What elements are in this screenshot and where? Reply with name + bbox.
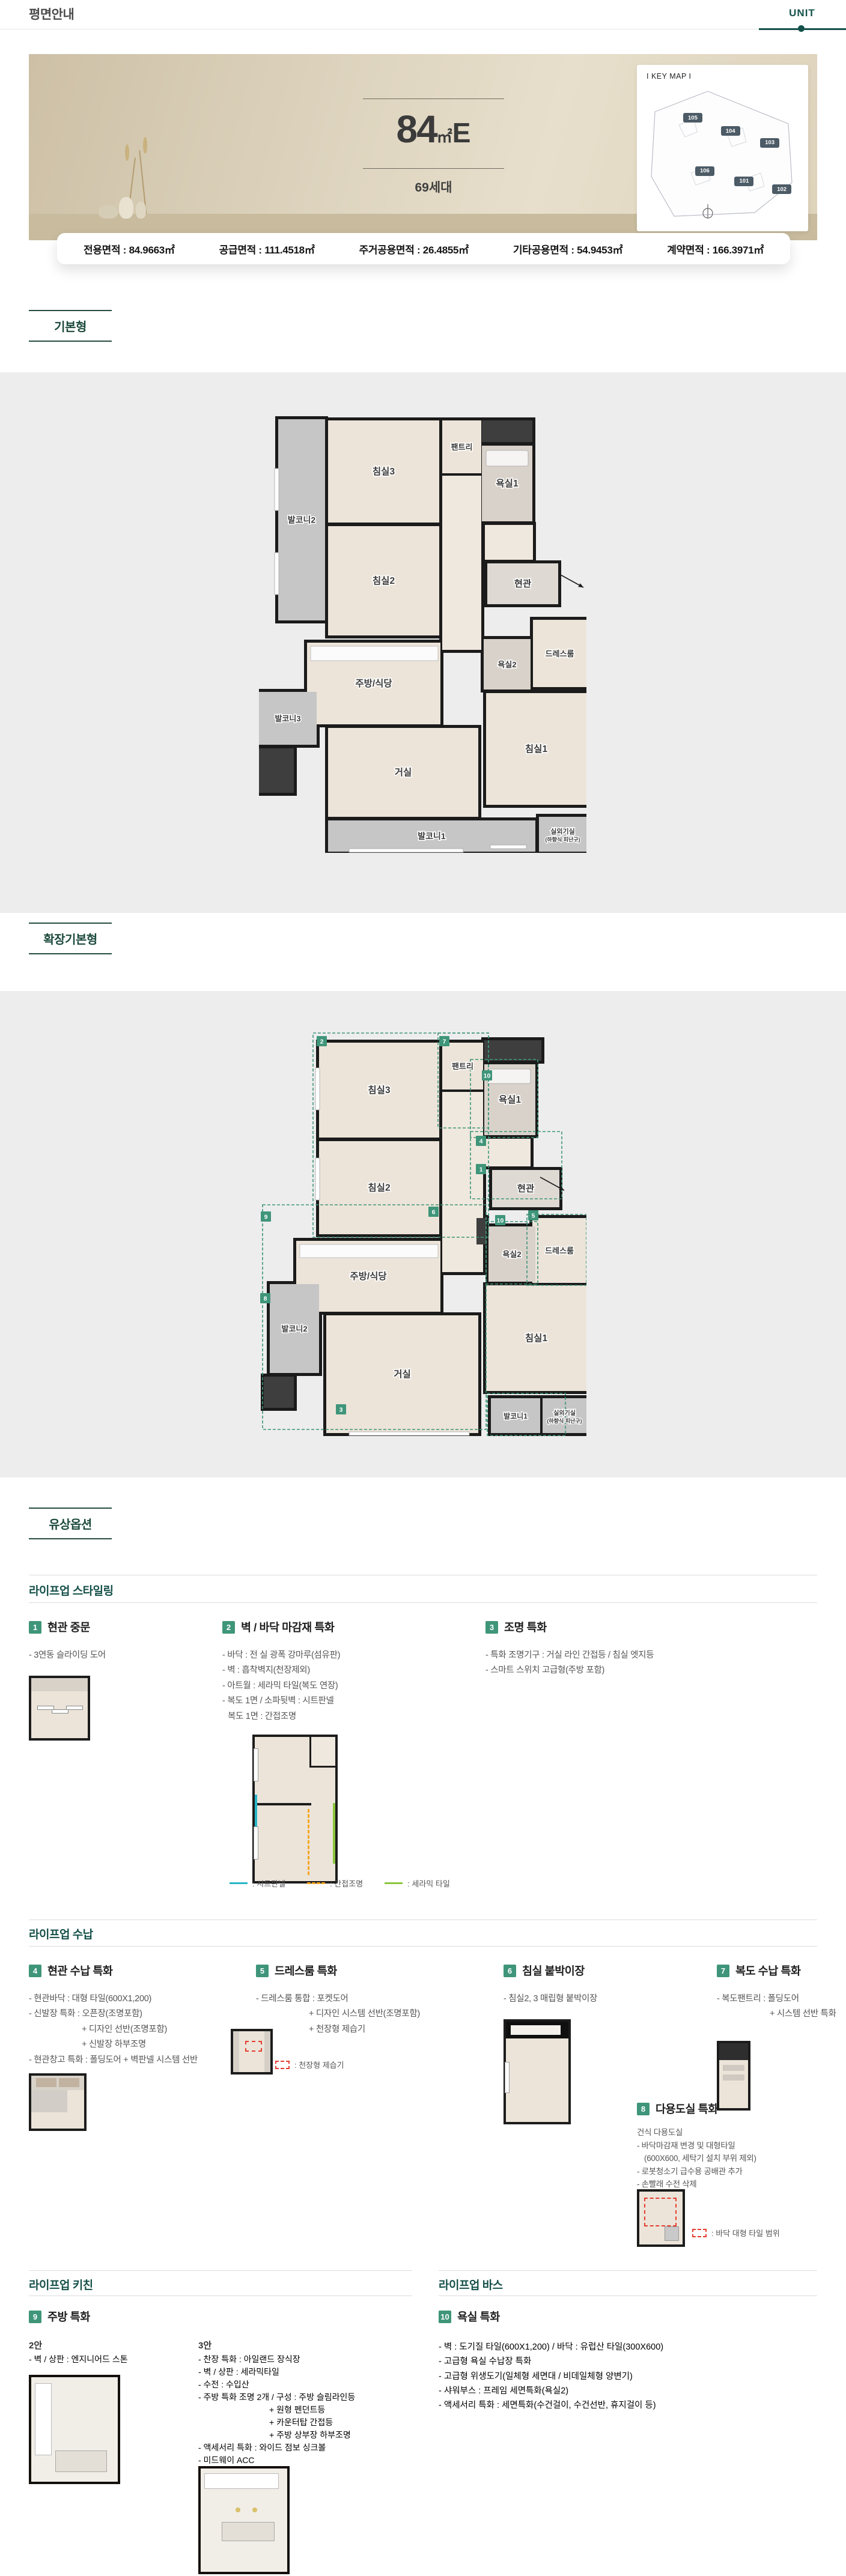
- option-line: - 3연동 슬라이딩 도어: [29, 1648, 106, 1663]
- decor-vase: [119, 197, 133, 219]
- option-line: - 특화 조명기구 : 거실 라인 간접등 / 침실 엣지등: [485, 1648, 654, 1663]
- styling-legend: : 시트판넬: 간접조명: 세라믹 타일: [230, 1877, 450, 1889]
- divider: [29, 1946, 817, 1947]
- divider: [29, 2270, 412, 2271]
- plan-option-badge-number: 10: [497, 1217, 504, 1225]
- section-label-basic: 기본형: [29, 310, 112, 342]
- unit-type-name: 84㎡E: [363, 107, 504, 151]
- plan-window: [349, 849, 463, 852]
- tab-unit[interactable]: UNIT: [781, 7, 823, 19]
- plan-option-badge-number: 3: [339, 1407, 343, 1414]
- kitchen-plan2-lines: - 벽 / 상판 : 엔지니어드 스톤: [29, 2353, 128, 2366]
- bathtub: [486, 450, 528, 466]
- option-line: - 드레스룸 통합 : 포켓도어: [256, 1992, 420, 2007]
- keymap-title: I KEY MAP I: [647, 72, 692, 80]
- decor-vase: [99, 205, 118, 219]
- option-builtin-closet: 6침실 붙박이장- 침실2, 3 매립형 붙박이장: [504, 1963, 597, 2007]
- plan-window: [349, 1432, 469, 1435]
- plan-window: [275, 553, 279, 595]
- area-item: 전용면적 : 84.9663㎡: [84, 241, 175, 256]
- option-line: - 침실2, 3 매립형 붙박이장: [504, 1992, 597, 2007]
- option-line: - 액세서리 특화 : 와이드 점보 싱크볼: [198, 2441, 355, 2454]
- room-label: 침실2: [373, 575, 395, 586]
- room-label: 드레스룸: [545, 1246, 574, 1255]
- tile-range-legend-label: : 바닥 대형 타일 범위: [711, 2227, 780, 2238]
- option-line: - 벽 : 흡착벽지(천장제외): [222, 1663, 340, 1678]
- decor-wheat: [143, 137, 147, 154]
- divider: [29, 2296, 412, 2296]
- option-line: - 찬장 특화 : 아일랜드 장식장: [198, 2353, 355, 2366]
- keymap-site-outline: [637, 65, 808, 231]
- divider: [439, 2270, 817, 2271]
- option-number-badge: 2: [222, 1621, 235, 1634]
- households-count: 69세대: [363, 178, 504, 196]
- option-line: - 신발장 특화 : 오픈장(조명포함): [29, 2007, 198, 2022]
- divider: [439, 2296, 817, 2296]
- kitchen-counter: [311, 646, 438, 661]
- option-line: - 벽 / 상판 : 엔지니어드 스톤: [29, 2353, 128, 2366]
- option-line: - 복도 1면 / 소파뒷벽 : 시트판넬: [222, 1694, 340, 1709]
- area-item: 공급면적 : 111.4518㎡: [219, 241, 315, 256]
- building-badge: 106: [695, 166, 714, 176]
- room-label: 현관: [514, 578, 532, 589]
- option-hallway-storage: 7복도 수납 특화- 복도팬트리 : 폴딩도어+ 시스템 선반 특화: [717, 1963, 836, 2022]
- option-line: - 수전 : 수입산: [198, 2378, 355, 2391]
- option-number-badge: 9: [29, 2311, 41, 2323]
- room-label: 주방/식당: [350, 1271, 387, 1282]
- area-item: 계약면적 : 166.3971㎡: [667, 241, 764, 256]
- kitchen-counter: [300, 1244, 438, 1258]
- plan-room: [482, 1139, 531, 1166]
- option-1-thumbnail: [29, 1676, 90, 1741]
- unit-type-suffix: E: [452, 117, 471, 148]
- option-line: - 주방 특화 조명 2개 / 구성 : 주방 슬림라인등: [198, 2391, 355, 2404]
- option-title: 복도 수납 특화: [735, 1963, 800, 1978]
- option-number-badge: 6: [504, 1965, 516, 1977]
- option-number-badge: 5: [256, 1965, 269, 1977]
- option-line: + 카운터탑 간접등: [269, 2416, 355, 2429]
- option-6-thumbnail: [504, 2019, 571, 2124]
- room-label: 팬트리: [451, 443, 473, 452]
- option-title: 주방 특화: [47, 2309, 90, 2324]
- legend-item: : 간접조명: [307, 1877, 363, 1889]
- plan-option-badge-number: 9: [264, 1214, 268, 1221]
- legend-swatch: [385, 1882, 403, 1884]
- plan-option-badge-number: 8: [264, 1296, 267, 1303]
- plan-option-badge-number: 4: [479, 1138, 483, 1145]
- option-line: + 디자인 선반(조명포함): [82, 2022, 198, 2037]
- room-label: 욕실2: [502, 1250, 521, 1259]
- option-line: + 신발장 하부조명: [82, 2037, 198, 2052]
- plan-option-badge-number: 6: [432, 1209, 436, 1216]
- option-line: - 고급형 욕실 수납장 특화: [439, 2354, 663, 2369]
- divider: [29, 1920, 817, 1920]
- legend-item: : 세라믹 타일: [385, 1877, 450, 1889]
- subsection-bath: 라이프업 바스: [439, 2276, 503, 2293]
- option-line: - 바닥마감재 변경 및 대형타일: [637, 2139, 756, 2153]
- option-number-badge: 10: [439, 2311, 451, 2323]
- room-label: 거실: [394, 1369, 411, 1380]
- option-utility-room: 8다용도실 특화건식 다용도실- 바닥마감재 변경 및 대형타일(600X600…: [637, 2101, 756, 2191]
- building-badge: 104: [721, 126, 740, 136]
- option-number-badge: 8: [637, 2103, 650, 2115]
- subsection-styling: 라이프업 스타일링: [29, 1582, 114, 1598]
- subsection-kitchen: 라이프업 키친: [29, 2276, 93, 2293]
- plan-window: [490, 845, 526, 849]
- option-number-badge: 1: [29, 1621, 41, 1634]
- unit-type-number: 84: [397, 108, 437, 151]
- option-line: - 고급형 위생도기(일체형 세면대 / 비데일체형 양변기): [439, 2369, 663, 2384]
- kitchen-plan2-thumbnail: [29, 2375, 120, 2484]
- room-label: 침실2: [368, 1182, 390, 1193]
- option-lighting: 3조명 특화- 특화 조명기구 : 거실 라인 간접등 / 침실 엣지등- 스마…: [485, 1619, 654, 1679]
- option-title: 현관 수납 특화: [47, 1963, 112, 1978]
- plan-option-badge-number: 10: [484, 1073, 491, 1080]
- plan-room: [264, 1377, 294, 1408]
- plan-window: [275, 468, 279, 511]
- room-label: 침실1: [525, 743, 548, 754]
- keymap-panel: I KEY MAP I 105104103106101102: [637, 65, 808, 231]
- option-line: - 벽 : 도기질 타일(600X1,200) / 바닥 : 유럽산 타일(30…: [439, 2340, 663, 2354]
- divider: [29, 1602, 817, 1603]
- option-title: 침실 붙박이장: [522, 1963, 585, 1978]
- room-label: 침실1: [525, 1332, 548, 1344]
- option-4-thumbnail: [29, 2073, 87, 2131]
- room-label: 팬트리: [452, 1062, 473, 1071]
- decor-wheat: [125, 144, 129, 161]
- option-title: 드레스룸 특화: [275, 1963, 337, 1978]
- option-bath: 10욕실 특화: [439, 2309, 500, 2324]
- option-line: - 현관바닥 : 대형 타일(600X1,200): [29, 1992, 198, 2007]
- option-title: 벽 / 바닥 마감재 특화: [241, 1619, 334, 1635]
- plan-room: [476, 1218, 486, 1244]
- room-sublabel: (하향식 피난구): [545, 836, 580, 843]
- plan-window: [315, 1068, 320, 1110]
- room-label: 실외기실: [550, 827, 574, 835]
- option-7-thumbnail: [717, 2041, 750, 2111]
- plan-room: [442, 1092, 483, 1272]
- option-title: 다용도실 특화: [656, 2101, 718, 2117]
- plan-room: [259, 748, 294, 793]
- unit-type-sqm: ㎡: [437, 128, 452, 146]
- kitchen-plan3-lines: - 찬장 특화 : 아일랜드 장식장- 벽 / 상판 : 세라믹타일- 수전 :…: [198, 2353, 355, 2467]
- building-badge: 101: [734, 177, 753, 186]
- option-number-badge: 7: [717, 1965, 729, 1977]
- option-line: + 천장형 제습기: [309, 2022, 420, 2037]
- option-entry-door: 1현관 중문- 3연동 슬라이딩 도어: [29, 1619, 106, 1663]
- area-item: 주거공용면적 : 26.4855㎡: [359, 241, 469, 256]
- option-line: - 샤워부스 : 프레임 세면특화(욕실2): [439, 2384, 663, 2398]
- option-line: - 로봇청소기 급수용 공배관 추가: [637, 2165, 756, 2178]
- option-line: (600X600, 세탁기 설치 부위 제외): [644, 2152, 756, 2165]
- kitchen-plan3-thumbnail: [198, 2466, 290, 2574]
- room-label: 욕실1: [496, 478, 519, 489]
- divider: [363, 98, 504, 99]
- bath-lines: - 벽 : 도기질 타일(600X1,200) / 바닥 : 유럽산 타일(30…: [439, 2340, 663, 2413]
- room-label: 발코니1: [504, 1411, 528, 1420]
- room-label: 실외기실: [553, 1409, 576, 1417]
- building-badge: 105: [683, 113, 702, 123]
- header-divider: [0, 29, 846, 29]
- option-number-badge: 4: [29, 1965, 41, 1977]
- plan-room: [485, 525, 533, 560]
- room-label: 욕실2: [498, 660, 516, 669]
- option-8-thumbnail: [637, 2189, 685, 2247]
- area-item: 기타공용면적 : 54.9453㎡: [513, 241, 622, 256]
- plan-window: [315, 1158, 320, 1200]
- option-title: 욕실 특화: [457, 2309, 500, 2324]
- divider: [363, 168, 504, 169]
- option-dressroom: 5드레스룸 특화- 드레스룸 통합 : 포켓도어+ 디자인 시스템 선반(조명포…: [256, 1963, 420, 2037]
- plan-option-badge-number: 7: [443, 1038, 446, 1046]
- decor-vase: [136, 202, 146, 219]
- option-line: + 디자인 시스템 선반(조명포함): [309, 2007, 420, 2022]
- section-label-paid-options: 유상옵션: [29, 1508, 112, 1539]
- room-label: 침실3: [373, 465, 395, 477]
- subsection-storage: 라이프업 수납: [29, 1926, 93, 1942]
- option-2-thumbnail: [252, 1735, 338, 1884]
- option-line: - 현관창고 특화 : 폴딩도어 + 벽판넬 시스템 선반: [29, 2053, 198, 2068]
- option-entry-storage: 4현관 수납 특화- 현관바닥 : 대형 타일(600X1,200)- 신발장 …: [29, 1963, 198, 2068]
- tile-range-legend: : 바닥 대형 타일 범위: [692, 2227, 780, 2238]
- room-label: 현관: [517, 1183, 535, 1194]
- option-5-thumbnail: [231, 2029, 273, 2074]
- bathtub: [487, 1069, 531, 1083]
- option-line: - 액세서리 특화 : 세면특화(수건걸이, 수건선반, 휴지걸이 등): [439, 2398, 663, 2413]
- floorplan-basic: 침실3팬트리욕실1발코니2침실2현관드레스룸욕실2주방/식당발코니3거실침실1발…: [259, 396, 586, 853]
- floorplan-extended: 침실3팬트리욕실1침실2현관드레스룸욕실2주방/식당발코니2거실침실1발코니1실…: [259, 1020, 586, 1452]
- option-line: + 주방 상부장 하부조명: [269, 2429, 355, 2441]
- dehumidifier-legend: : 천장형 제습기: [275, 2059, 344, 2070]
- room-label: 거실: [395, 767, 412, 778]
- kitchen-plan3-name: 3안: [198, 2339, 211, 2351]
- plan-option-badge-number: 2: [320, 1038, 324, 1046]
- option-kitchen: 9주방 특화: [29, 2309, 90, 2324]
- red-dash-swatch: [275, 2061, 290, 2069]
- option-line: - 복도팬트리 : 폴딩도어: [717, 1992, 836, 2007]
- option-line: - 바닥 : 전 실 광폭 강마루(섬유판): [222, 1648, 340, 1663]
- room-label: 발코니1: [418, 831, 446, 841]
- room-label: 드레스룸: [546, 649, 574, 658]
- page-title: 평면안내: [29, 5, 74, 23]
- option-line: - 스마트 스위치 고급형(주방 포함): [485, 1663, 654, 1678]
- plan-room: [442, 476, 481, 650]
- legend-swatch: [230, 1882, 248, 1884]
- option-line: - 벽 / 상판 : 세라믹타일: [198, 2366, 355, 2378]
- plan-option-badge-number: 5: [532, 1213, 535, 1220]
- plan-room: [484, 1040, 541, 1061]
- area-summary-bar: 전용면적 : 84.9663㎡공급면적 : 111.4518㎡주거공용면적 : …: [57, 233, 790, 264]
- tab-active-dot-icon: [798, 25, 805, 32]
- room-label: 발코니2: [288, 515, 316, 525]
- legend-item: : 시트판넬: [230, 1877, 285, 1889]
- room-sublabel: (하향식 피난구): [547, 1417, 582, 1424]
- legend-swatch: [307, 1882, 325, 1884]
- option-number-badge: 3: [485, 1621, 498, 1634]
- room-label: 침실3: [368, 1084, 391, 1096]
- option-line: 복도 1면 : 간접조명: [228, 1709, 340, 1724]
- option-line: - 미드웨이 ACC: [198, 2454, 355, 2467]
- option-title: 현관 중문: [47, 1619, 90, 1635]
- page: 평면안내 UNIT 84㎡E 69세대 I KEY MAP I 10510410…: [0, 0, 846, 2576]
- option-line: - 아트월 : 세라믹 타일(복도 연장): [222, 1679, 340, 1694]
- section-label-extended: 확장기본형: [29, 923, 112, 954]
- room-label: 발코니3: [275, 714, 300, 723]
- option-wall-floor-finish: 2벽 / 바닥 마감재 특화- 바닥 : 전 실 광폭 강마루(섬유판)- 벽 …: [222, 1619, 340, 1724]
- divider: [29, 1575, 817, 1575]
- red-dash-swatch: [692, 2229, 707, 2237]
- option-title: 조명 특화: [504, 1619, 547, 1635]
- option-line: + 시스템 선반 특화: [770, 2007, 836, 2022]
- building-badge: 102: [772, 184, 791, 194]
- room-label: 주방/식당: [355, 678, 392, 689]
- plan-room: [482, 420, 532, 442]
- room-label: 발코니2: [281, 1324, 307, 1333]
- room-label: 욕실1: [499, 1094, 522, 1105]
- option-line: + 원형 펜던트등: [269, 2404, 355, 2416]
- building-badge: 103: [760, 138, 779, 148]
- plan-option-badge-number: 1: [479, 1166, 483, 1174]
- option-line: 건식 다용도실: [637, 2126, 756, 2139]
- dehumidifier-legend-label: : 천장형 제습기: [294, 2059, 344, 2070]
- hero-banner: 84㎡E 69세대 I KEY MAP I 105104103106101102: [29, 54, 817, 240]
- kitchen-plan2-name: 2안: [29, 2339, 42, 2351]
